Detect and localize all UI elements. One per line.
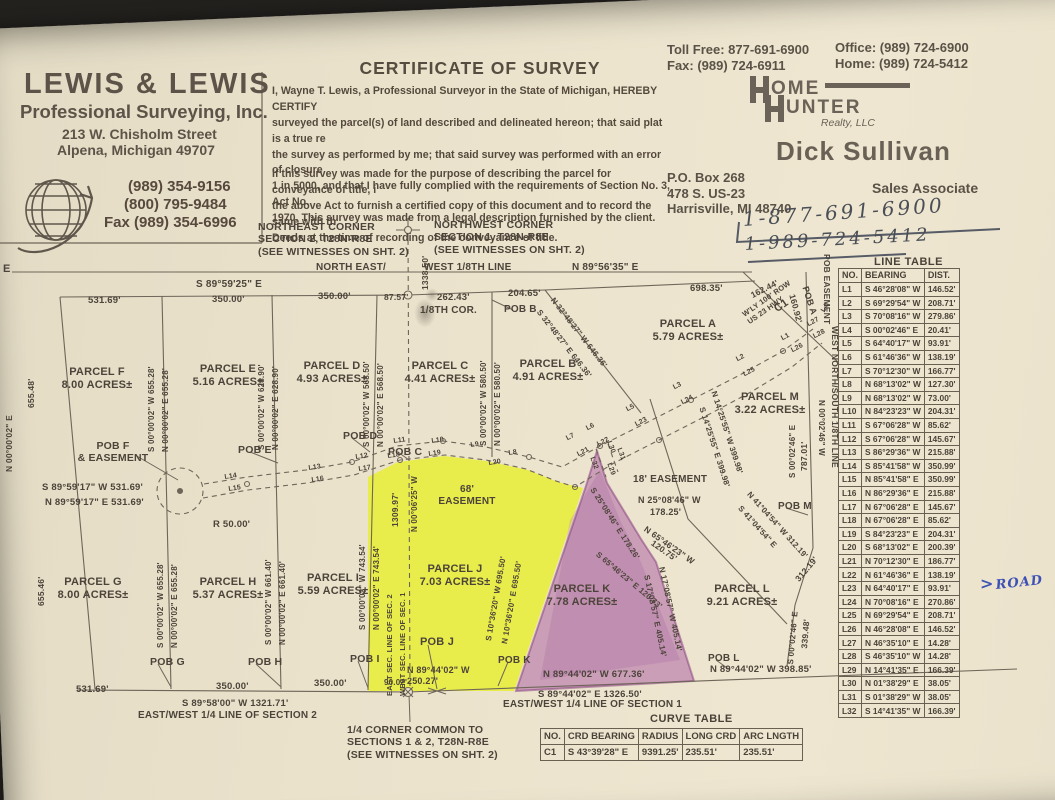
n000246w-v: N 00°02'46" W [817,400,826,456]
pob-j: POB J [420,636,454,649]
l16: L16 [311,475,325,485]
ne-corner-note: NORTHEAST CORNER SECTION 2, T28N-R8E (SE… [258,221,409,258]
s895917w: S 89°59'17" W 531.69' [42,482,143,493]
column-header: RADIUS [638,729,682,745]
d-350-d: 350.00' [318,291,351,302]
table-row: L29N 14°41'35" E166.39' [839,663,960,677]
table-row: L31S 01°38'29" W38.05' [839,690,960,704]
column-header: NO. [839,269,862,283]
d-130997: 1309.97' [390,493,400,527]
r5000: R 50.00' [213,519,250,530]
line-table: NO.BEARINGDIST.L1S 46°28'08" W146.52'L2S… [838,268,960,718]
table-cell: 9391.25' [638,745,682,761]
table-cell: 93.91' [924,582,959,596]
table-row: L27N 46°35'10" E14.28' [839,636,960,650]
dc-n00: N 00°00'02" E 568.50' [376,363,385,447]
parcel-h: PARCEL H 5.37 ACRES± [193,576,264,602]
table-cell: L30 [839,677,862,691]
l13: L13 [308,463,322,473]
d-350-e: 350.00' [212,294,245,305]
table-cell: 279.86' [924,310,959,324]
table-cell: N 67°06'28" E [862,500,925,514]
table-row: L25N 69°29'54" E208.71' [839,609,960,623]
l14: L14 [224,472,238,482]
l8: L8 [508,449,518,458]
cb-n00: N 00°00'02" E 580.50' [493,362,502,446]
table-cell: L15 [839,473,862,487]
logo-word-bottom: UNTER [786,97,861,119]
table-cell: 235.51' [682,745,740,761]
column-header: ARC LNGTH [740,729,803,745]
d-17825: 178.25' [650,507,681,518]
d-350-g: 350.00' [216,681,249,692]
pob-h: POB H [248,656,282,668]
table-cell: N 46°28'08" E [862,622,925,636]
column-header: DIST. [924,269,959,283]
table-cell: N 68°13'02" W [862,378,925,392]
n895635e: N 89°56'35" E [572,262,639,274]
realtor-toll-free: Toll Free: 877-691-6900 [667,42,809,57]
table-cell: 145.67' [924,500,959,514]
table-cell: N 86°29'36" E [862,486,925,500]
table-cell: N 69°29'54" E [862,609,925,623]
table-cell: L12 [839,432,862,446]
table-cell: 350.99' [924,459,959,473]
table-cell: N 67°06'28" E [862,514,925,528]
table-cell: S 46°28'08" W [862,283,925,297]
table-cell: L24 [839,595,862,609]
table-cell: 127.30' [924,378,959,392]
table-cell: S 70°08'16" W [862,310,925,324]
table-cell: N 46°35'10" E [862,636,925,650]
column-header: LONG CRD [682,729,740,745]
n000625w: N 00°06'25" W [410,476,419,532]
agent-name: Dick Sullivan [776,136,951,167]
curve-table: NO.CRD BEARINGRADIUSLONG CRDARC LNGTHC1S… [540,728,803,761]
table-cell: 38.05' [924,677,959,691]
d-20465: 204.65' [508,288,541,299]
surveyor-company-subtitle: Professional Surveying, Inc. [20,101,268,123]
table-cell: L5 [839,337,862,351]
realtor-fax: Fax: (989) 724-6911 [667,58,786,73]
table-cell: L7 [839,364,862,378]
logo-underline-bar [825,83,910,88]
table-cell: L26 [839,622,862,636]
table-cell: 166.39' [924,663,959,677]
n894402w-677: N 89°44'02" W 677.36' [543,669,645,680]
table-cell: L21 [839,554,862,568]
table-cell: S 46°35'10" W [862,650,925,664]
table-cell: 208.71' [924,296,959,310]
table-row: L10N 84°23'23" W204.31' [839,405,960,419]
l19: L19 [428,449,442,459]
line-table-title: LINE TABLE [874,256,943,268]
globe-logo-icon [18,180,92,252]
table-cell: 215.88' [924,486,959,500]
pob-i: POB I [350,653,380,665]
table-cell: L22 [839,568,862,582]
table-row: L21N 70°12'30" E186.77' [839,554,960,568]
left-655-48: 655.48' [26,379,36,408]
ed-s00: S 00°00'02" W 628.90' [257,364,266,450]
l20: L20 [488,458,502,468]
table-cell: L19 [839,527,862,541]
surveyor-phone-2: (800) 795-9484 [124,196,227,213]
table-row: L16N 86°29'36" E215.88' [839,486,960,500]
s000246e-upper: S 00°02'46" E [788,425,797,478]
realtor-home: Home: (989) 724-5412 [835,56,968,71]
parcel-m: PARCEL M 3.22 ACRES± [735,391,806,417]
table-cell: N 84°23'23" W [862,405,925,419]
table-cell: 138.19' [924,568,959,582]
table-cell: S 00°02'46" E [862,323,925,337]
table-cell: L25 [839,609,862,623]
table-row: L7S 70°12'30" W166.77' [839,364,960,378]
curve-table-title: CURVE TABLE [650,713,733,725]
table-cell: L20 [839,541,862,555]
column-header: CRD BEARING [564,729,638,745]
table-cell: N 68°13'02" W [862,391,925,405]
table-cell: L18 [839,514,862,528]
table-row: L19S 84°23'23" E204.31' [839,527,960,541]
table-cell: S 70°12'30" W [862,364,925,378]
table-cell: N 61°46'36" E [862,568,925,582]
surveyor-company-name: LEWIS & LEWIS [24,68,271,101]
table-row: L9N 68°13'02" W73.00' [839,391,960,405]
table-cell: S 69°29'54" W [862,296,925,310]
table-row: L23N 64°40'17" E93.91' [839,582,960,596]
s895925e: S 89°59'25" E [196,279,262,291]
l15: L15 [228,484,242,494]
ew-quarter-sec1: EAST/WEST 1/4 LINE OF SECTION 1 [503,699,682,711]
table-row: L26N 46°28'08" E146.52' [839,622,960,636]
hi-s00: S 00°00'02" W 661.40' [264,559,273,645]
table-cell: 146.52' [924,283,959,297]
l11: L11 [393,436,406,446]
d-69835: 698.35' [690,283,723,294]
parcel-a: PARCEL A 5.79 ACRES± [653,318,724,344]
l17: L17 [358,464,372,474]
table-row: L18N 67°06'28" E85.62' [839,514,960,528]
hi-n00: N 00°00'02" E 661.40' [278,561,287,645]
table-cell: L23 [839,582,862,596]
table-cell: L8 [839,378,862,392]
pob-e: POB E [238,444,272,456]
l9: L9 [470,441,480,450]
l10: L10 [431,436,445,446]
table-cell: 14.28' [924,650,959,664]
n250846w: N 25°08'46" W [638,495,701,506]
table-cell: 204.31' [924,405,959,419]
d-53169-bot: 531.69' [76,684,109,695]
d-26243: 262.43' [437,292,470,303]
pob-b: POB B [504,304,537,316]
ij-n00: N 00°00'02" E 743.54' [372,546,381,630]
pob-k: POB K [498,655,531,667]
easement-18: 18' EASEMENT [633,474,707,486]
parcel-g: PARCEL G 8.00 ACRES± [58,576,129,602]
table-cell: 145.67' [924,432,959,446]
table-row: L28S 46°35'10" W14.28' [839,650,960,664]
parcel-j: PARCEL J 7.03 ACRES± [420,563,491,589]
table-header-row: NO.CRD BEARINGRADIUSLONG CRDARC LNGTH [541,729,803,745]
table-cell: 85.62' [924,418,959,432]
table-cell: S 43°39'28" E [564,745,638,761]
surveyor-phone-1: (989) 354-9156 [128,178,231,195]
pob-f: POB F & EASEMENT [78,440,149,465]
table-cell: 166.77' [924,364,959,378]
table-row: L3S 70°08'16" W279.86' [839,310,960,324]
table-cell: L9 [839,391,862,405]
table-cell: L3 [839,310,862,324]
nw-corner-note: NORTHWEST CORNER SECTION 1, T28N-R8E (SE… [434,219,585,256]
table-cell: 235.51' [740,745,803,761]
table-row: L30N 01°38'29" E38.05' [839,677,960,691]
left-655-46: 655.46' [36,577,46,606]
table-cell: S 67°06'28" W [862,418,925,432]
pob-m: POB M [778,501,812,513]
column-header: NO. [541,729,565,745]
table-row: L22N 61°46'36" E138.19' [839,568,960,582]
surveyor-address-city: Alpena, Michigan 49707 [57,142,215,158]
table-cell: L6 [839,350,862,364]
d-78701: 787.01' [799,442,809,471]
table-row: L4S 00°02'46" E20.41' [839,323,960,337]
scanned-survey-page: LEWIS & LEWIS Professional Surveying, In… [0,0,1055,800]
table-row: L6S 61°46'36" W138.19' [839,350,960,364]
l12: L12 [355,452,369,462]
d-350-h: 350.00' [314,678,347,689]
table-cell: L32 [839,704,862,718]
table-cell: L27 [839,636,862,650]
table-cell: N 70°12'30" E [862,554,925,568]
parcel-e: PARCEL E 5.16 ACRES± [193,363,264,389]
parcel-l: PARCEL L 9.21 ACRES± [707,583,778,609]
table-cell: L28 [839,650,862,664]
road-chevron: > [980,575,994,594]
table-cell: 215.88' [924,446,959,460]
left-bearing-n00: N 00°00'02" E [4,415,14,472]
ed-n00: N 00°00'02" E 628.90' [271,366,280,450]
e-left: E [3,263,11,276]
table-cell: L29 [839,663,862,677]
table-cell: S 14°41'35" W [862,704,925,718]
table-cell: 93.91' [924,337,959,351]
d-8757: 87.57' [384,292,409,302]
table-row: L14S 85°41'58" W350.99' [839,459,960,473]
table-row: L1S 46°28'08" W146.52' [839,283,960,297]
n895917e: N 89°59'17" E 531.69' [45,497,144,508]
s895800w: S 89°58'00" W 1321.71' [182,698,288,709]
west-18th-label: WEST 1/8TH LINE [424,262,511,274]
table-cell: S 67°06'28" W [862,432,925,446]
parcel-f: PARCEL F 8.00 ACRES± [62,366,133,392]
parcel-d: PARCEL D 4.93 ACRES± [297,360,368,386]
d-53169-top: 531.69' [88,295,121,306]
table-cell: L10 [839,405,862,419]
table-cell: N 14°41'35" E [862,663,925,677]
table-cell: S 01°38'29" W [862,690,925,704]
n894402w-250: N 89°44'02" W 250.27' [407,665,470,686]
table-cell: N 70°08'16" E [862,595,925,609]
n894402w-398: N 89°44'02" W 398.85' [710,664,812,675]
table-cell: L1 [839,283,862,297]
table-cell: 138.19' [924,350,959,364]
cb-s00: S 00°00'02" W 580.50' [479,360,488,446]
ij-s00: S 00°00'02" W 743.54' [358,544,367,630]
pob-d: POB D [343,430,377,442]
quarter-corner-note: 1/4 CORNER COMMON TO SECTIONS 1 & 2, T28… [347,724,498,761]
table-row: L32S 14°41'35" W166.39' [839,704,960,718]
table-cell: L11 [839,418,862,432]
l18: L18 [387,451,401,461]
table-row: C1S 43°39'28" E9391.25'235.51'235.51' [541,745,803,761]
table-row: L2S 69°29'54" W208.71' [839,296,960,310]
gh-s00: S 00°00'02" W 655.28' [156,562,165,648]
table-row: L13S 86°29'36" W215.88' [839,446,960,460]
table-cell: S 61°46'36" W [862,350,925,364]
table-cell: L14 [839,459,862,473]
table-cell: 20.41' [924,323,959,337]
fe-n00: N 00°00'02" E 655.28' [161,368,170,452]
table-row: L15N 85°41'58" E350.99' [839,473,960,487]
table-cell: N 64°40'17" E [862,582,925,596]
table-cell: 38.05' [924,690,959,704]
table-cell: 85.62' [924,514,959,528]
table-cell: C1 [541,745,565,761]
d-9002: 90.02' [384,678,407,687]
table-cell: L16 [839,486,862,500]
gh-n00: N 00°00'02" E 655.28' [170,564,179,648]
realtor-office: Office: (989) 724-6900 [835,40,969,55]
home-hunter-logo: OME UNTER Realty, LLC [750,76,910,129]
table-cell: 186.77' [924,554,959,568]
pob-g: POB G [150,656,185,668]
table-cell: 350.99' [924,473,959,487]
ew-quarter-sec2: EAST/WEST 1/4 LINE OF SECTION 2 [138,710,317,722]
table-cell: 200.39' [924,541,959,555]
table-header-row: NO.BEARINGDIST. [839,269,960,283]
table-cell: L2 [839,296,862,310]
parcel-k: PARCEL K 7.78 ACRES± [547,583,618,609]
table-row: L24N 70°08'16" E270.86' [839,595,960,609]
surveyor-fax: Fax (989) 354-6996 [104,214,237,231]
certificate-title: CERTIFICATE OF SURVEY [340,58,620,79]
table-cell: 270.86' [924,595,959,609]
table-row: L17N 67°06'28" E145.67' [839,500,960,514]
table-cell: S 84°23'23" E [862,527,925,541]
surveyor-address-street: 213 W. Chisholm Street [62,126,217,142]
column-header: BEARING [862,269,925,283]
table-cell: L17 [839,500,862,514]
table-cell: 204.31' [924,527,959,541]
table-cell: 166.39' [924,704,959,718]
table-row: L8N 68°13'02" W127.30' [839,378,960,392]
easement-68: 68' EASEMENT [438,484,495,508]
table-cell: S 86°29'36" W [862,446,925,460]
table-cell: N 01°38'29" E [862,677,925,691]
table-cell: L13 [839,446,862,460]
parcel-c: PARCEL C 4.41 ACRES± [405,360,476,386]
table-row: L11S 67°06'28" W85.62' [839,418,960,432]
table-cell: 146.52' [924,622,959,636]
north-east-label: NORTH EAST/ [316,262,386,274]
table-cell: L4 [839,323,862,337]
table-row: L5S 64°40'17" W93.91' [839,337,960,351]
dist-1338: 1338.50' [420,256,430,290]
table-cell: 14.28' [924,636,959,650]
table-cell: L31 [839,690,862,704]
table-cell: 208.71' [924,609,959,623]
table-row: L12S 67°06'28" W145.67' [839,432,960,446]
table-row: L20S 68°13'02" E200.39' [839,541,960,555]
table-cell: S 85°41'58" W [862,459,925,473]
page-content: LEWIS & LEWIS Professional Surveying, In… [0,0,1055,800]
table-cell: S 68°13'02" E [862,541,925,555]
table-cell: S 64°40'17" W [862,337,925,351]
logo-h-block-icon [765,95,784,122]
table-cell: 73.00' [924,391,959,405]
table-cell: N 85°41'58" E [862,473,925,487]
lbl-18cor: 1/8TH COR. [420,305,477,317]
